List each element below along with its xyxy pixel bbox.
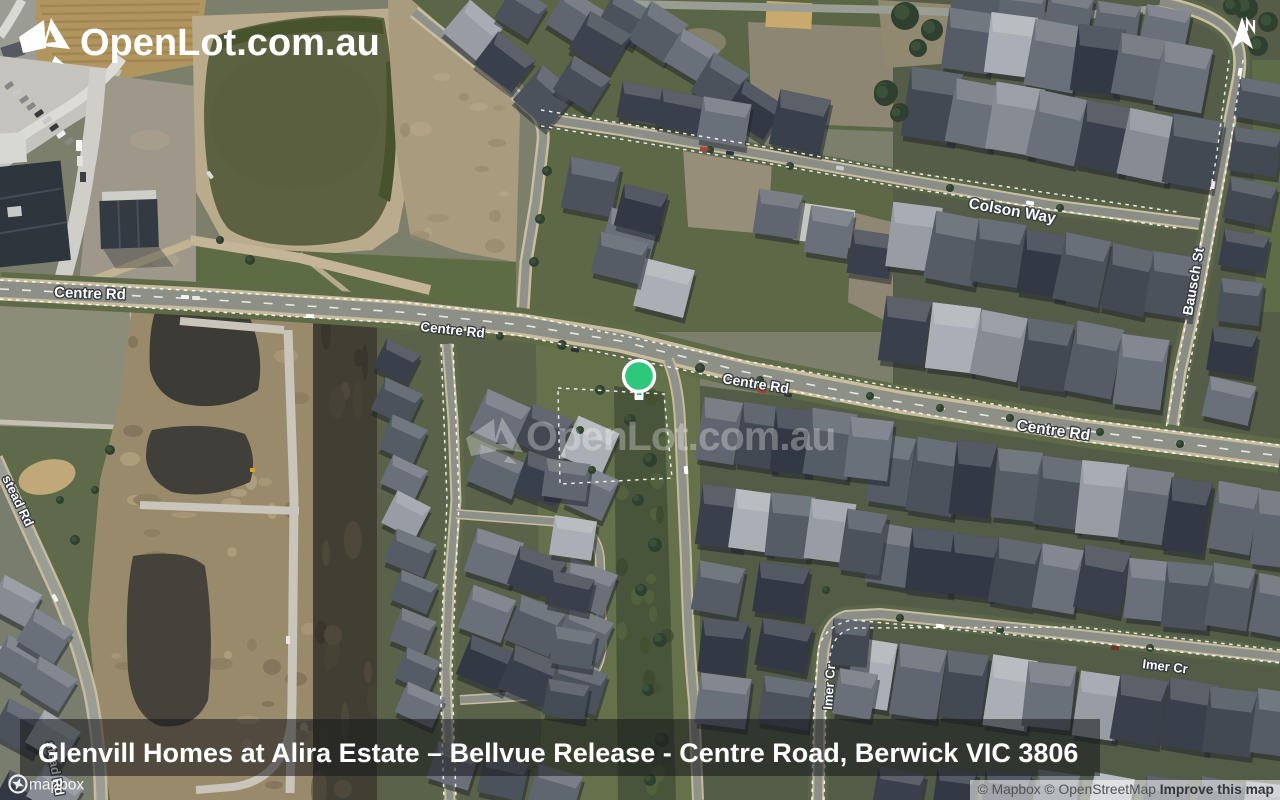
svg-text:© Mapbox © OpenStreetMap Impro: © Mapbox © OpenStreetMap Improve this ma… (978, 782, 1274, 797)
svg-text:OpenLot.com.au: OpenLot.com.au (80, 22, 380, 64)
svg-text:OpenLot.com.au: OpenLot.com.au (526, 413, 835, 459)
svg-text:Centre Rd: Centre Rd (54, 284, 126, 303)
svg-text:Glenvill Homes at Alira Estate: Glenvill Homes at Alira Estate – Bellvue… (38, 738, 1078, 768)
svg-text:mapbox: mapbox (29, 777, 84, 794)
svg-text:Imer Cr: Imer Cr (820, 664, 838, 710)
